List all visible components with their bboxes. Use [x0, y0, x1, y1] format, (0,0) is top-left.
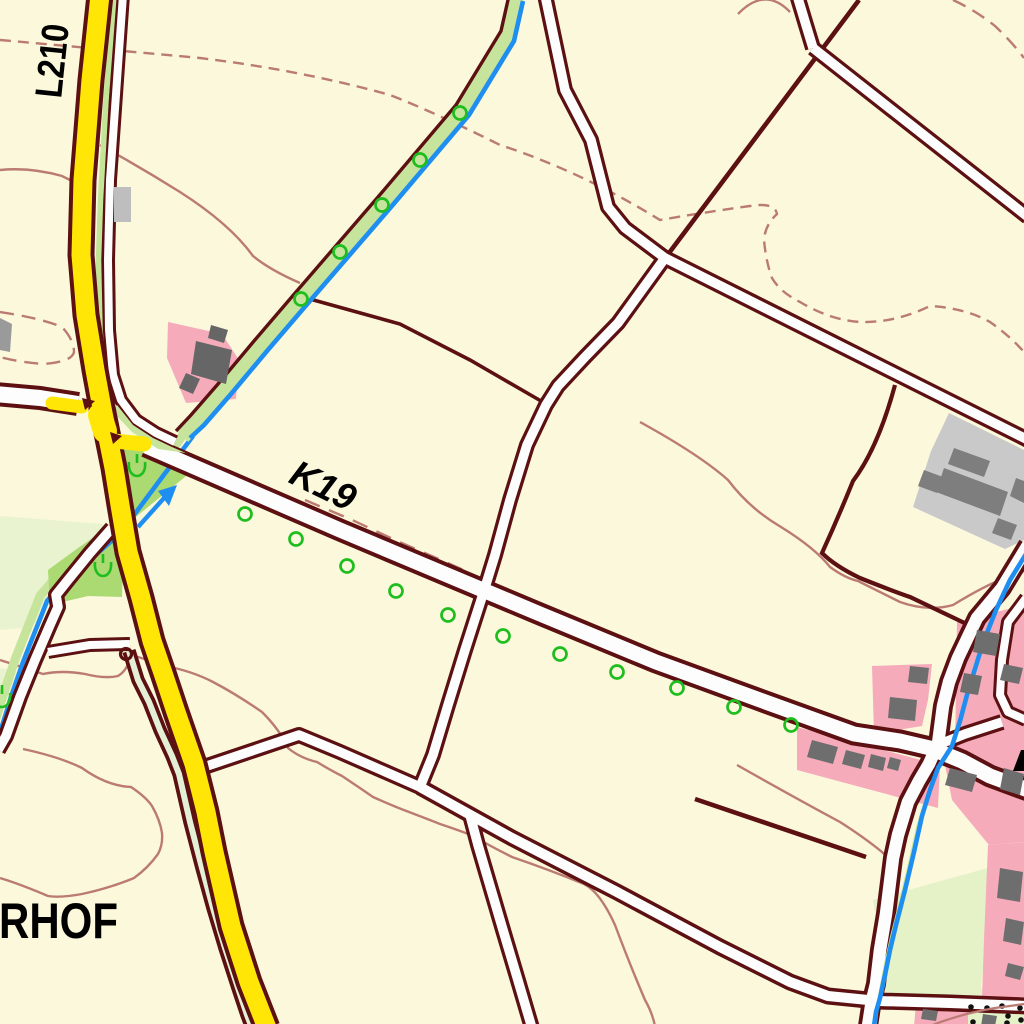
- svg-text:RHOF: RHOF: [0, 893, 118, 949]
- svg-text:L210: L210: [28, 22, 78, 100]
